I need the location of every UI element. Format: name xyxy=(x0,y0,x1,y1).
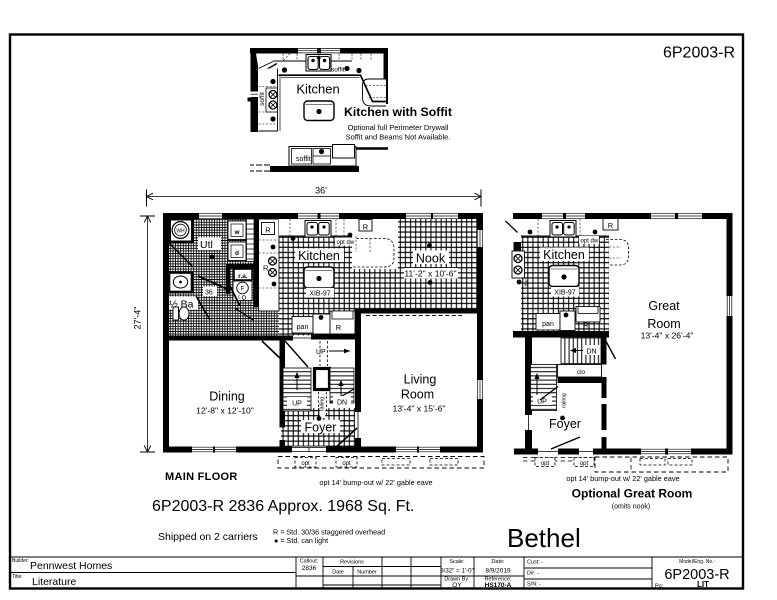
svg-text:Kitchen: Kitchen xyxy=(543,248,585,262)
svg-text:Kitchen: Kitchen xyxy=(296,82,339,97)
svg-text:Date:: Date: xyxy=(491,559,505,565)
svg-text:Scale:: Scale: xyxy=(449,559,465,565)
svg-text:6P2003-R: 6P2003-R xyxy=(663,45,735,62)
svg-text:Dir: -: Dir: - xyxy=(527,571,539,577)
svg-text:opt 14' bump-out w/ 22' gable: opt 14' bump-out w/ 22' gable eave xyxy=(319,478,432,487)
svg-text:Builder:: Builder: xyxy=(12,558,29,564)
svg-text:8/9/2019: 8/9/2019 xyxy=(485,568,511,575)
svg-text:R: R xyxy=(608,221,614,230)
svg-text:railing: railing xyxy=(320,397,326,412)
svg-text:R: R xyxy=(583,321,589,330)
svg-text:Revisions: Revisions xyxy=(340,560,364,566)
svg-text:13'-4" x 26'-4": 13'-4" x 26'-4" xyxy=(641,331,694,341)
svg-text:HS170-A: HS170-A xyxy=(485,582,512,589)
svg-text:opt: opt xyxy=(342,461,351,467)
svg-text:LIT: LIT xyxy=(697,580,709,589)
svg-text:Kitchen with Soffit: Kitchen with Soffit xyxy=(344,105,452,119)
svg-text:Optional full Perimeter Drywal: Optional full Perimeter Drywall xyxy=(348,123,449,132)
svg-text:Pg:: Pg: xyxy=(655,584,664,590)
svg-text:Shipped on 2 carriers: Shipped on 2 carriers xyxy=(158,531,258,543)
svg-text:clo: clo xyxy=(577,369,586,376)
svg-text:UP: UP xyxy=(316,349,326,356)
svg-text:Pennwest Homes: Pennwest Homes xyxy=(30,560,112,572)
svg-text:R: R xyxy=(363,223,369,232)
svg-text:OY: OY xyxy=(452,582,462,589)
svg-text:Model/Eng. No.:: Model/Eng. No.: xyxy=(679,559,715,565)
svg-text:WH: WH xyxy=(176,229,185,235)
svg-text:Utl: Utl xyxy=(200,239,213,251)
svg-text:DN: DN xyxy=(337,400,347,407)
svg-text:11'-2" x 10'-6": 11'-2" x 10'-6" xyxy=(404,269,456,279)
svg-text:opt: opt xyxy=(580,461,589,467)
svg-text:F: F xyxy=(241,287,245,293)
svg-text:XIB-97: XIB-97 xyxy=(554,290,576,297)
svg-text:soffit: soffit xyxy=(331,67,345,74)
svg-text:railing: railing xyxy=(562,393,568,408)
svg-text:opt 14' bump-out w/ 22' gable: opt 14' bump-out w/ 22' gable eave xyxy=(566,474,679,483)
svg-text:Optional Great Room: Optional Great Room xyxy=(572,487,693,501)
svg-text:Room: Room xyxy=(647,317,680,331)
svg-text:2836: 2836 xyxy=(302,565,317,572)
svg-text:Living: Living xyxy=(404,373,437,387)
svg-text:UP: UP xyxy=(537,399,547,406)
svg-text:Room: Room xyxy=(401,388,434,402)
svg-text:13'-4" x 15'-6": 13'-4" x 15'-6" xyxy=(393,404,446,414)
svg-text:Foyer: Foyer xyxy=(305,421,337,435)
svg-text:(omits nook): (omits nook) xyxy=(612,504,651,511)
svg-text:Number: Number xyxy=(357,570,377,576)
svg-text:Soffit and Beams Not Available: Soffit and Beams Not Available. xyxy=(346,133,451,142)
svg-text:6P2003-R 2836 Approx. 1968 Sq: 6P2003-R 2836 Approx. 1968 Sq. Ft. xyxy=(152,498,414,515)
svg-text:12'-8" x 12'-10": 12'-8" x 12'-10" xyxy=(196,406,254,416)
svg-text:Bethel: Bethel xyxy=(507,523,581,553)
svg-text:opt: opt xyxy=(301,461,310,467)
svg-text:R: R xyxy=(263,264,269,273)
svg-text:opt dw: opt dw xyxy=(581,239,599,245)
svg-text:pan: pan xyxy=(542,321,554,328)
svg-text:Great: Great xyxy=(648,299,680,313)
svg-text:R: R xyxy=(336,323,342,332)
svg-text:DN: DN xyxy=(586,349,596,356)
svg-text:S/N: -: S/N: - xyxy=(527,582,541,588)
svg-text:soffit: soffit xyxy=(296,156,311,163)
svg-text:XIB-97: XIB-97 xyxy=(309,291,331,298)
svg-text:Cust: -: Cust: - xyxy=(527,560,543,566)
svg-text:36': 36' xyxy=(315,186,327,196)
svg-text:dw: dw xyxy=(524,279,530,286)
svg-text:3/32" = 1'-0": 3/32" = 1'-0" xyxy=(440,568,474,575)
svg-text:Foyer: Foyer xyxy=(549,417,581,431)
svg-text:pan: pan xyxy=(297,324,309,331)
svg-text:R: R xyxy=(265,226,271,235)
svg-text:27'-4": 27'-4" xyxy=(133,307,143,330)
svg-text:UP: UP xyxy=(292,401,302,408)
svg-text:opt dw: opt dw xyxy=(337,240,355,246)
svg-text:MAIN FLOOR: MAIN FLOOR xyxy=(165,471,238,483)
svg-text:Title:: Title: xyxy=(12,574,23,580)
svg-text:Dining: Dining xyxy=(209,390,244,404)
svg-text:d: d xyxy=(235,250,239,257)
svg-text:r.a.: r.a. xyxy=(238,273,248,280)
svg-text:36: 36 xyxy=(205,290,213,297)
svg-text:Kitchen: Kitchen xyxy=(298,249,340,263)
svg-text:soffit: soffit xyxy=(259,92,266,106)
svg-text:Date: Date xyxy=(332,570,344,576)
svg-text:w: w xyxy=(233,229,240,236)
svg-text:Nook: Nook xyxy=(416,252,446,266)
svg-text:Callout:: Callout: xyxy=(300,559,319,565)
svg-text:opt: opt xyxy=(541,461,550,467)
svg-text:Literature: Literature xyxy=(32,576,77,588)
svg-text:● = Std. can light: ● = Std. can light xyxy=(274,536,328,545)
